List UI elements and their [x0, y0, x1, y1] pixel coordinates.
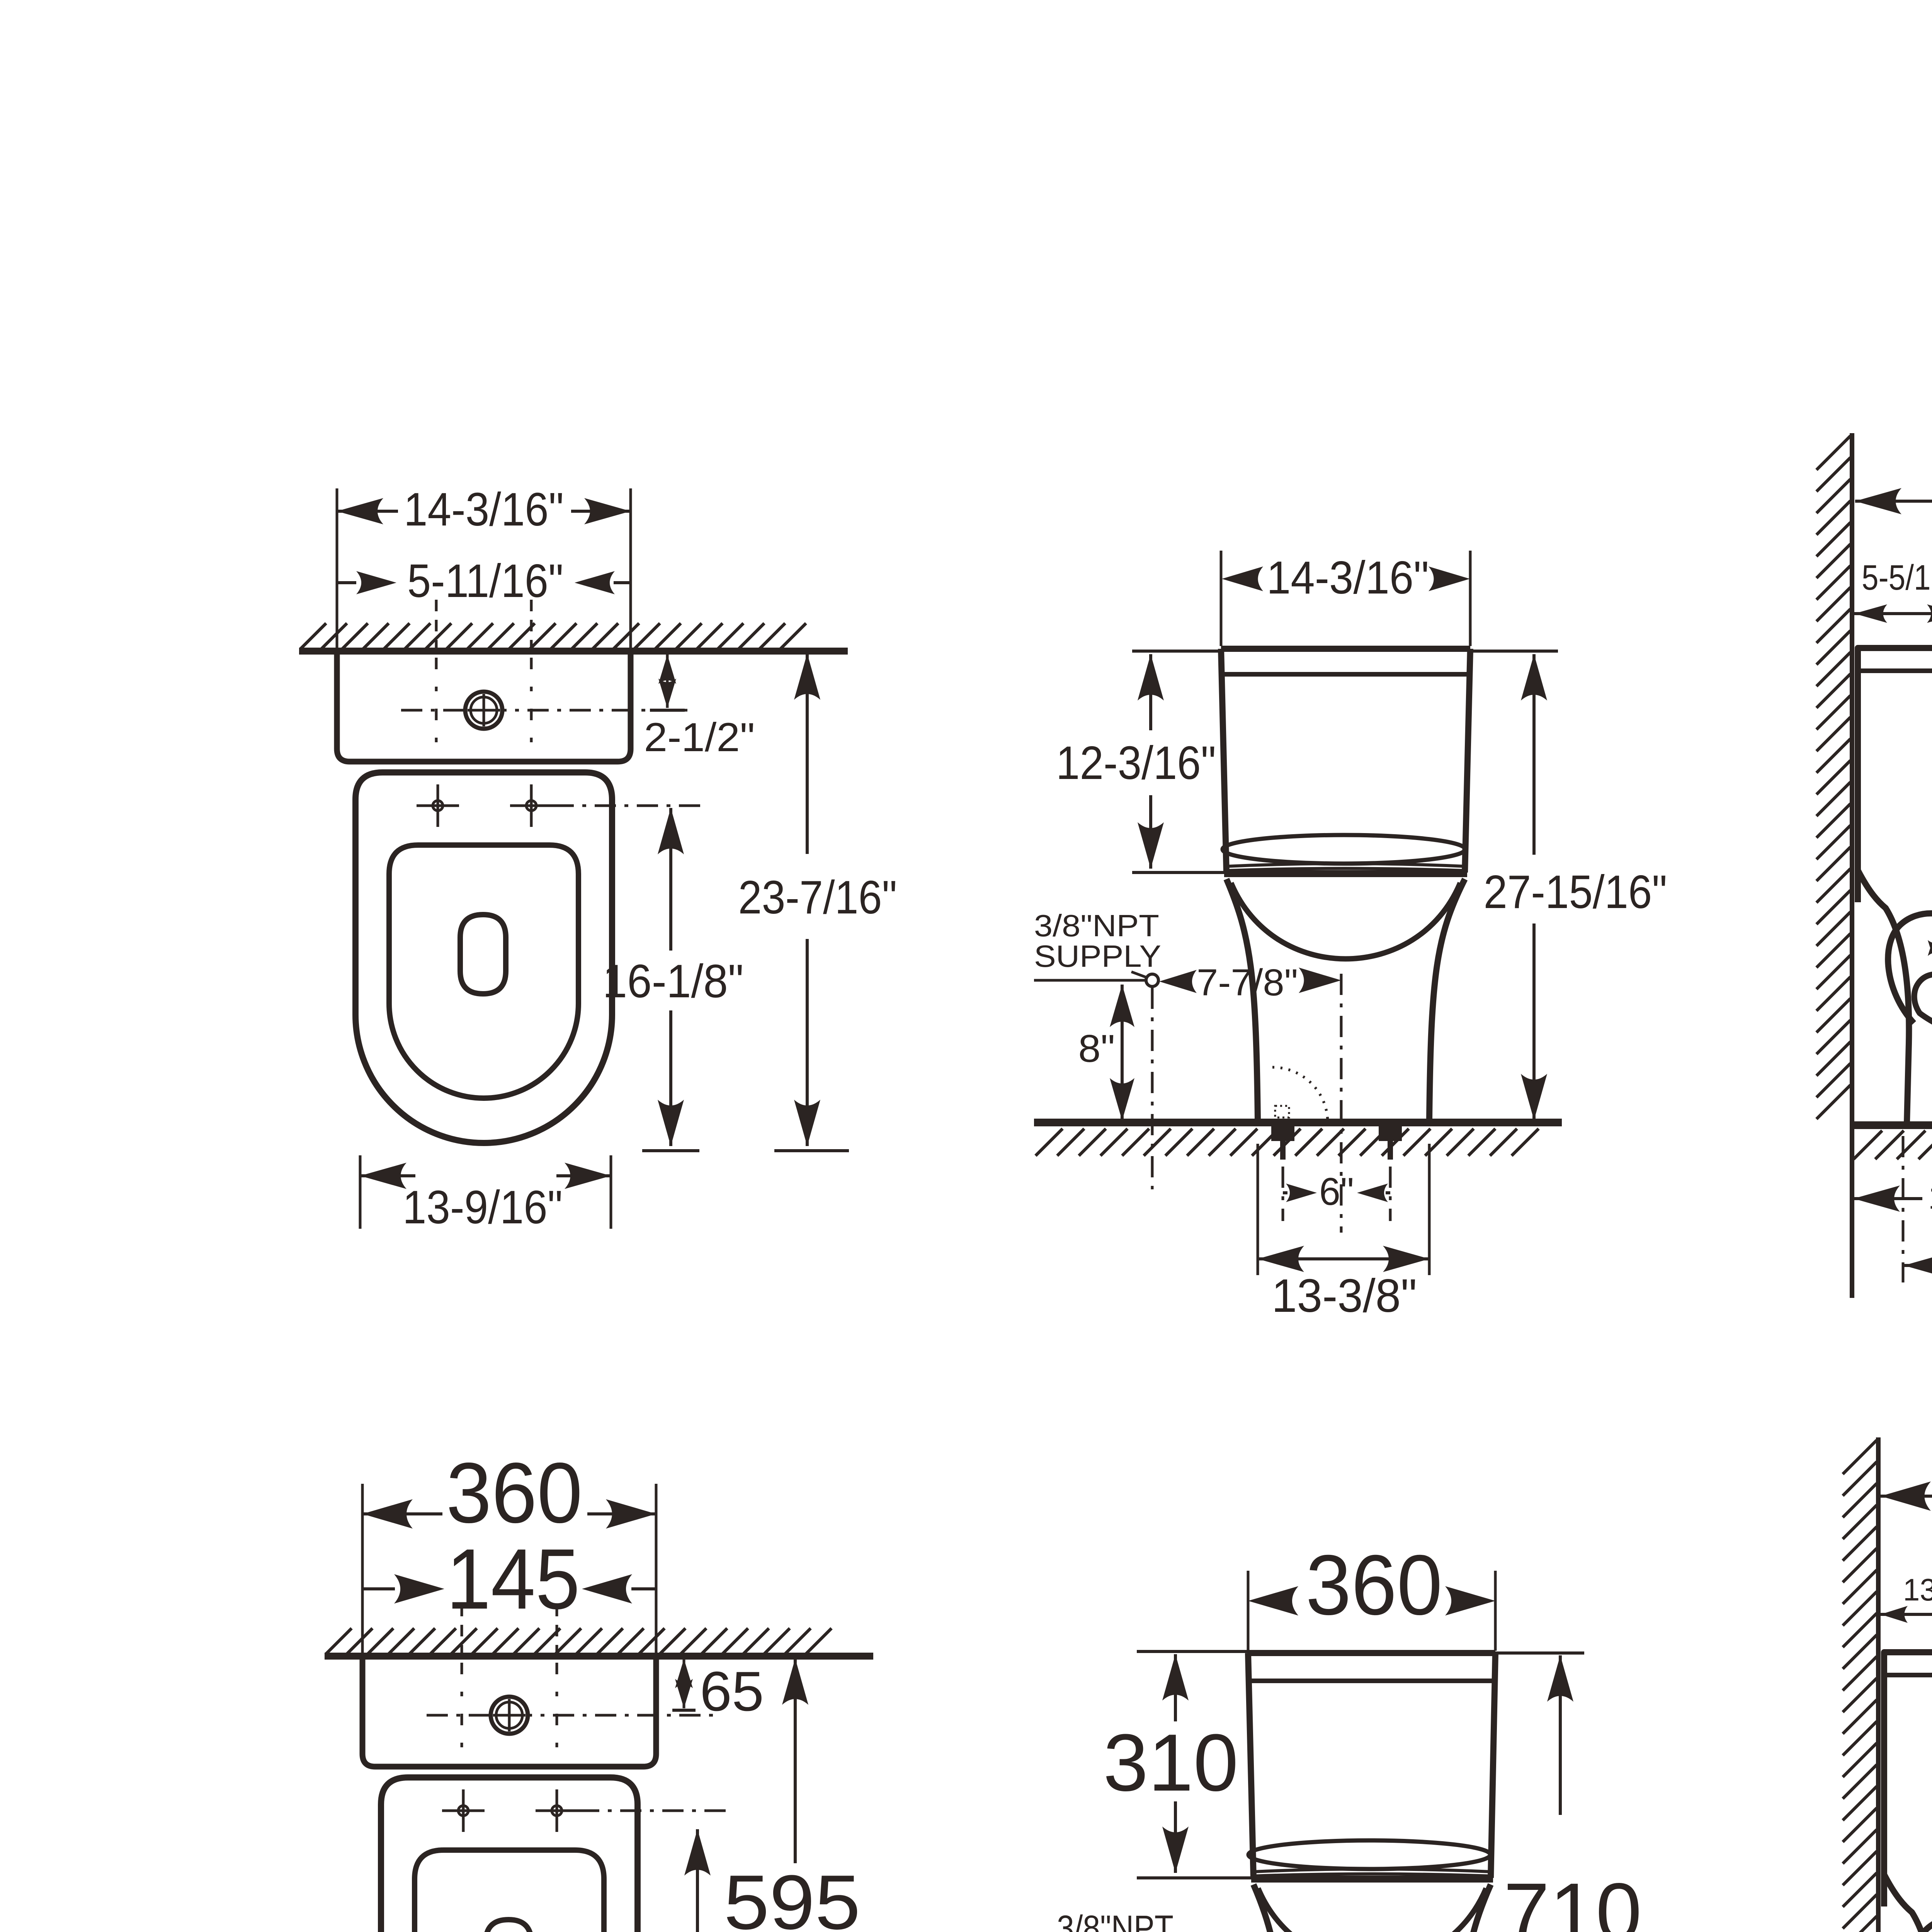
svg-text:65: 65: [700, 1660, 764, 1723]
svg-text:145: 145: [446, 1531, 580, 1627]
svg-text:14-3/16": 14-3/16": [404, 483, 564, 536]
svg-text:360: 360: [446, 1445, 583, 1541]
svg-text:3/8"NPT: 3/8"NPT: [1057, 1908, 1173, 1932]
svg-text:12-3/16": 12-3/16": [1056, 736, 1216, 789]
svg-text:5-5/16": 5-5/16": [1862, 558, 1932, 597]
svg-text:SUPPLY: SUPPLY: [1034, 939, 1161, 973]
svg-text:16-1/8": 16-1/8": [603, 955, 744, 1007]
svg-text:13-9/16": 13-9/16": [403, 1181, 563, 1233]
svg-text:23-7/16": 23-7/16": [738, 871, 897, 923]
svg-text:595: 595: [724, 1859, 861, 1932]
svg-text:27-15/16": 27-15/16": [1484, 866, 1667, 918]
svg-text:2-1/2": 2-1/2": [644, 715, 755, 760]
svg-text:310: 310: [1103, 1717, 1238, 1808]
svg-text:6": 6": [1319, 1170, 1354, 1213]
svg-text:7-7/8": 7-7/8": [1197, 961, 1298, 1003]
svg-text:710: 710: [1503, 1866, 1642, 1932]
svg-text:12": 12": [1929, 1178, 1932, 1216]
svg-text:14-3/16": 14-3/16": [1267, 552, 1429, 604]
svg-text:5-11/16": 5-11/16": [407, 554, 563, 607]
svg-text:360: 360: [1306, 1537, 1442, 1633]
svg-text:8": 8": [1078, 1027, 1115, 1070]
svg-text:135: 135: [1903, 1573, 1932, 1607]
svg-text:13-3/8": 13-3/8": [1272, 1269, 1417, 1322]
svg-text:3/8"NPT: 3/8"NPT: [1034, 908, 1159, 943]
